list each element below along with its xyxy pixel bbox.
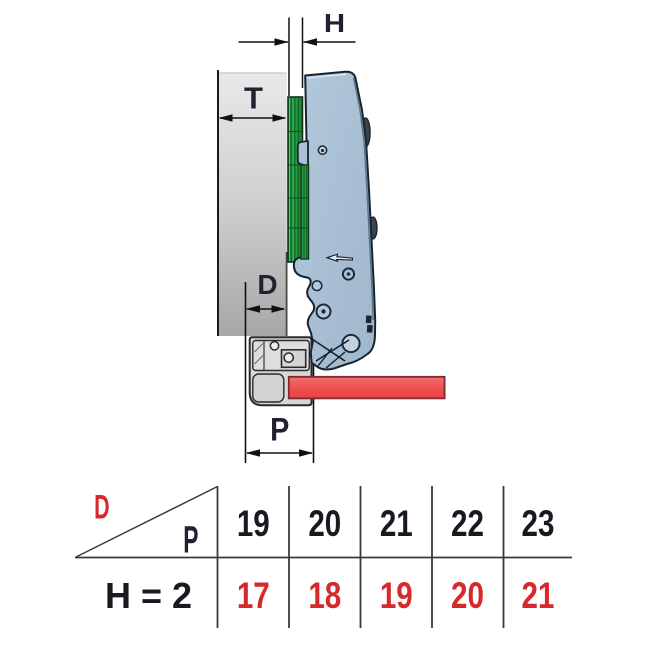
- svg-text:21: 21: [380, 504, 413, 545]
- svg-text:22: 22: [451, 504, 484, 545]
- svg-text:21: 21: [522, 576, 555, 617]
- svg-text:17: 17: [237, 576, 270, 617]
- svg-text:23: 23: [522, 504, 555, 545]
- svg-text:18: 18: [308, 576, 341, 617]
- svg-text:D: D: [94, 489, 109, 527]
- svg-text:19: 19: [380, 576, 413, 617]
- svg-text:H: H: [324, 9, 345, 38]
- svg-text:D: D: [257, 269, 277, 300]
- svg-text:T: T: [244, 81, 263, 116]
- svg-text:P: P: [183, 519, 198, 561]
- svg-text:P: P: [270, 412, 289, 448]
- svg-text:19: 19: [237, 504, 270, 545]
- svg-text:20: 20: [308, 504, 341, 545]
- svg-text:20: 20: [451, 576, 484, 617]
- svg-text:H = 2: H = 2: [105, 575, 192, 616]
